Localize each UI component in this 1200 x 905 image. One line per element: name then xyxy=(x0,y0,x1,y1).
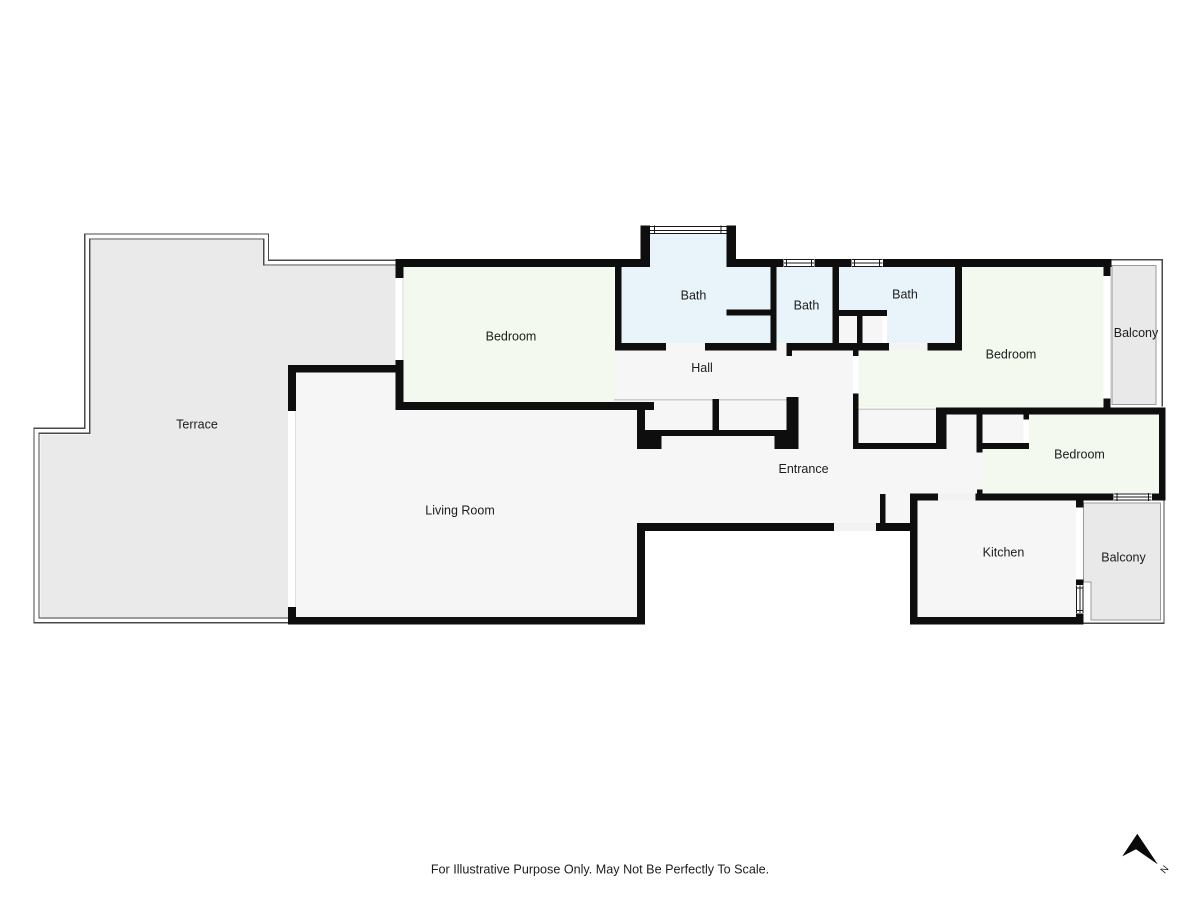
svg-text:Bedroom: Bedroom xyxy=(986,348,1037,362)
svg-text:Bath: Bath xyxy=(892,288,918,302)
svg-text:Balcony: Balcony xyxy=(1114,326,1159,340)
svg-text:Entrance: Entrance xyxy=(778,462,828,476)
svg-text:Bedroom: Bedroom xyxy=(1054,448,1105,462)
svg-text:Bath: Bath xyxy=(794,299,820,313)
svg-text:Hall: Hall xyxy=(691,361,713,375)
svg-text:Bedroom: Bedroom xyxy=(486,330,537,344)
svg-text:Terrace: Terrace xyxy=(176,418,218,432)
svg-text:Bath: Bath xyxy=(681,289,707,303)
svg-text:For Illustrative Purpose Only.: For Illustrative Purpose Only. May Not B… xyxy=(431,863,769,877)
svg-text:Kitchen: Kitchen xyxy=(983,546,1025,560)
svg-text:Living Room: Living Room xyxy=(425,504,494,518)
svg-text:Balcony: Balcony xyxy=(1101,551,1146,565)
